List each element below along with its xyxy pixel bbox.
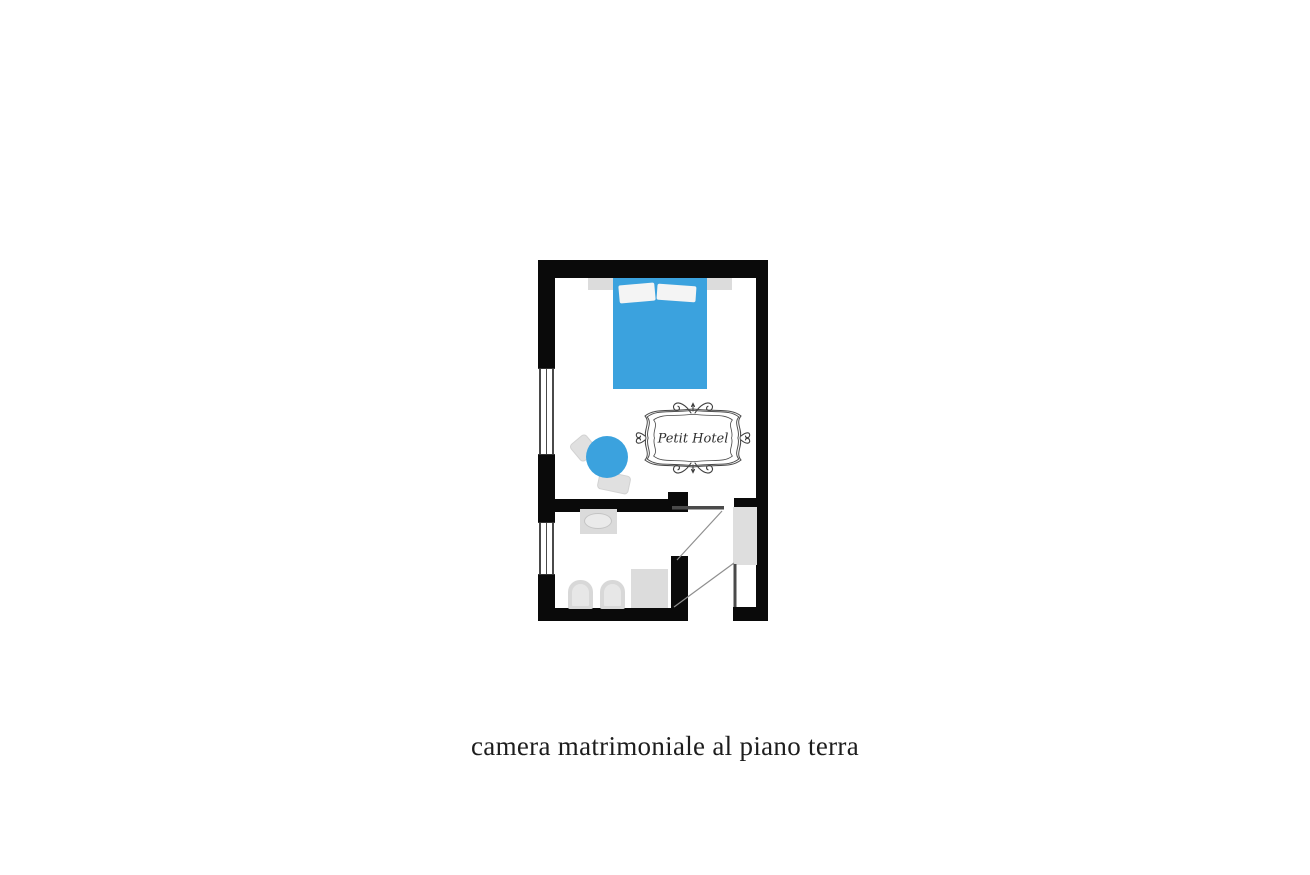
petit-hotel-emblem: Petit Hotel [633, 399, 753, 477]
bathroom-door-leaf [672, 506, 724, 510]
flourish-left-icon [636, 433, 645, 443]
caption: camera matrimoniale al piano terra [471, 731, 859, 762]
floorplan: Petit Hotel [538, 260, 768, 621]
entrance-door-leaf [734, 564, 737, 607]
entrance-door-swing-line [674, 563, 734, 607]
flourish-right-icon [741, 433, 750, 443]
page-background: Petit Hotel camera matrimoniale al piano… [0, 0, 1310, 875]
petit-hotel-label: Petit Hotel [657, 432, 729, 447]
bathroom-door-swing-line [677, 511, 722, 560]
